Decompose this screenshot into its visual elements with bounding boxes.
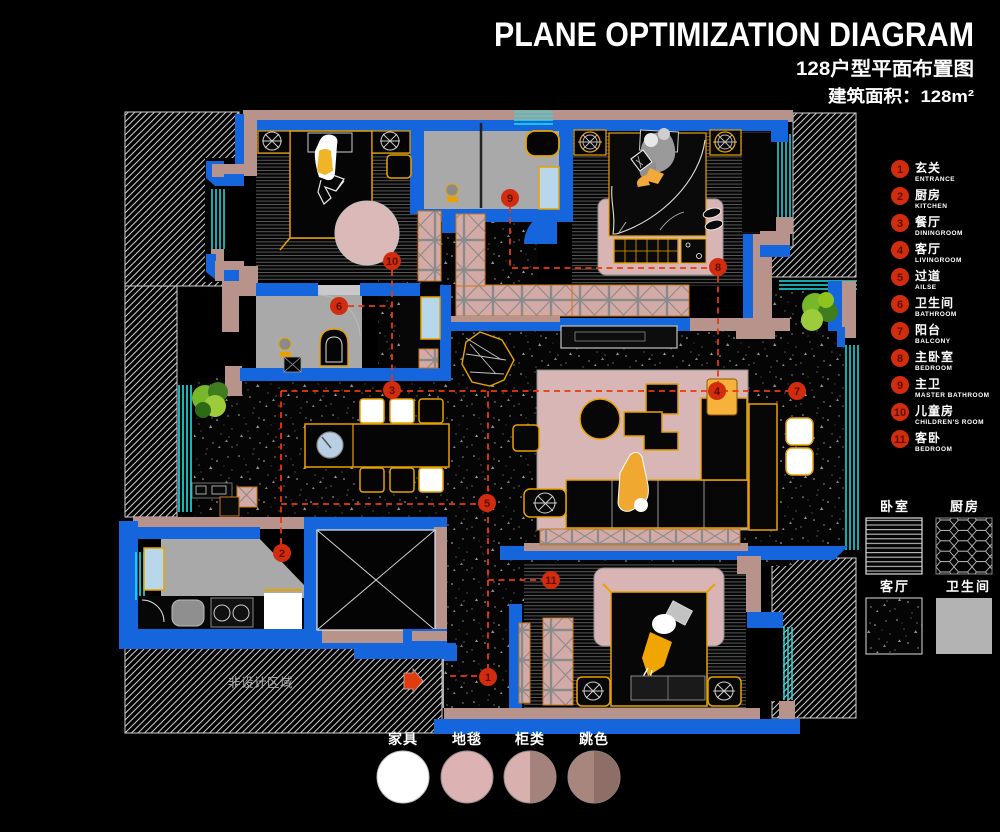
svg-text:客厅: 客厅 xyxy=(880,579,910,594)
svg-text:客厅: 客厅 xyxy=(914,241,941,256)
svg-text:6: 6 xyxy=(336,301,342,313)
svg-text:4: 4 xyxy=(714,386,721,398)
svg-text:3: 3 xyxy=(389,385,395,397)
svg-text:卫生间: 卫生间 xyxy=(946,579,991,594)
svg-text:5: 5 xyxy=(897,272,903,284)
svg-text:PLANE OPTIMIZATION DIAGRAM: PLANE OPTIMIZATION DIAGRAM xyxy=(494,16,974,54)
svg-text:主卧室: 主卧室 xyxy=(915,349,954,364)
svg-text:BATHROOM: BATHROOM xyxy=(915,311,957,318)
svg-text:BEDROOM: BEDROOM xyxy=(915,365,952,372)
svg-text:客卧: 客卧 xyxy=(914,430,941,445)
svg-text:4: 4 xyxy=(897,245,904,257)
svg-text:地毯: 地毯 xyxy=(452,731,482,747)
svg-text:128户型平面布置图: 128户型平面布置图 xyxy=(796,57,974,80)
svg-text:10: 10 xyxy=(386,256,398,268)
svg-text:阳台: 阳台 xyxy=(915,322,941,337)
svg-text:6: 6 xyxy=(897,299,903,311)
svg-text:7: 7 xyxy=(897,326,903,338)
svg-text:卫生间: 卫生间 xyxy=(915,295,954,310)
svg-text:LIVINGROOM: LIVINGROOM xyxy=(915,257,962,264)
svg-text:11: 11 xyxy=(894,434,906,446)
svg-text:非设计区域: 非设计区域 xyxy=(228,675,293,690)
svg-text:9: 9 xyxy=(897,380,903,392)
svg-text:建筑面积：128m²: 建筑面积：128m² xyxy=(828,86,974,106)
svg-text:11: 11 xyxy=(545,575,557,587)
svg-text:1: 1 xyxy=(485,672,491,684)
svg-text:过道: 过道 xyxy=(915,268,941,283)
svg-text:2: 2 xyxy=(897,191,903,203)
svg-text:柜类: 柜类 xyxy=(515,731,545,747)
svg-text:玄关: 玄关 xyxy=(915,160,941,175)
svg-text:5: 5 xyxy=(484,498,490,510)
svg-text:厨房: 厨房 xyxy=(950,499,980,514)
svg-text:7: 7 xyxy=(794,386,800,398)
svg-text:跳色: 跳色 xyxy=(579,731,609,747)
svg-text:厨房: 厨房 xyxy=(915,187,941,202)
svg-text:CHILDREN'S ROOM: CHILDREN'S ROOM xyxy=(915,419,984,426)
svg-text:KITCHEN: KITCHEN xyxy=(915,203,947,210)
svg-text:AILSE: AILSE xyxy=(915,284,937,291)
svg-text:儿童房: 儿童房 xyxy=(914,403,954,418)
svg-text:1: 1 xyxy=(897,164,903,176)
svg-text:2: 2 xyxy=(279,548,285,560)
svg-text:MASTER BATHROOM: MASTER BATHROOM xyxy=(915,392,990,399)
svg-text:9: 9 xyxy=(507,193,513,205)
svg-text:家具: 家具 xyxy=(388,731,418,747)
svg-text:餐厅: 餐厅 xyxy=(915,214,941,229)
svg-text:主卫: 主卫 xyxy=(915,376,941,391)
svg-text:BALCONY: BALCONY xyxy=(915,338,951,345)
svg-text:ENTRANCE: ENTRANCE xyxy=(915,176,955,183)
svg-text:卧室: 卧室 xyxy=(880,499,910,514)
svg-text:8: 8 xyxy=(897,353,903,365)
svg-text:3: 3 xyxy=(897,218,903,230)
svg-text:DININGROOM: DININGROOM xyxy=(915,230,963,237)
svg-text:BEDROOM: BEDROOM xyxy=(915,446,952,453)
svg-text:10: 10 xyxy=(894,407,906,419)
svg-text:8: 8 xyxy=(715,262,721,274)
